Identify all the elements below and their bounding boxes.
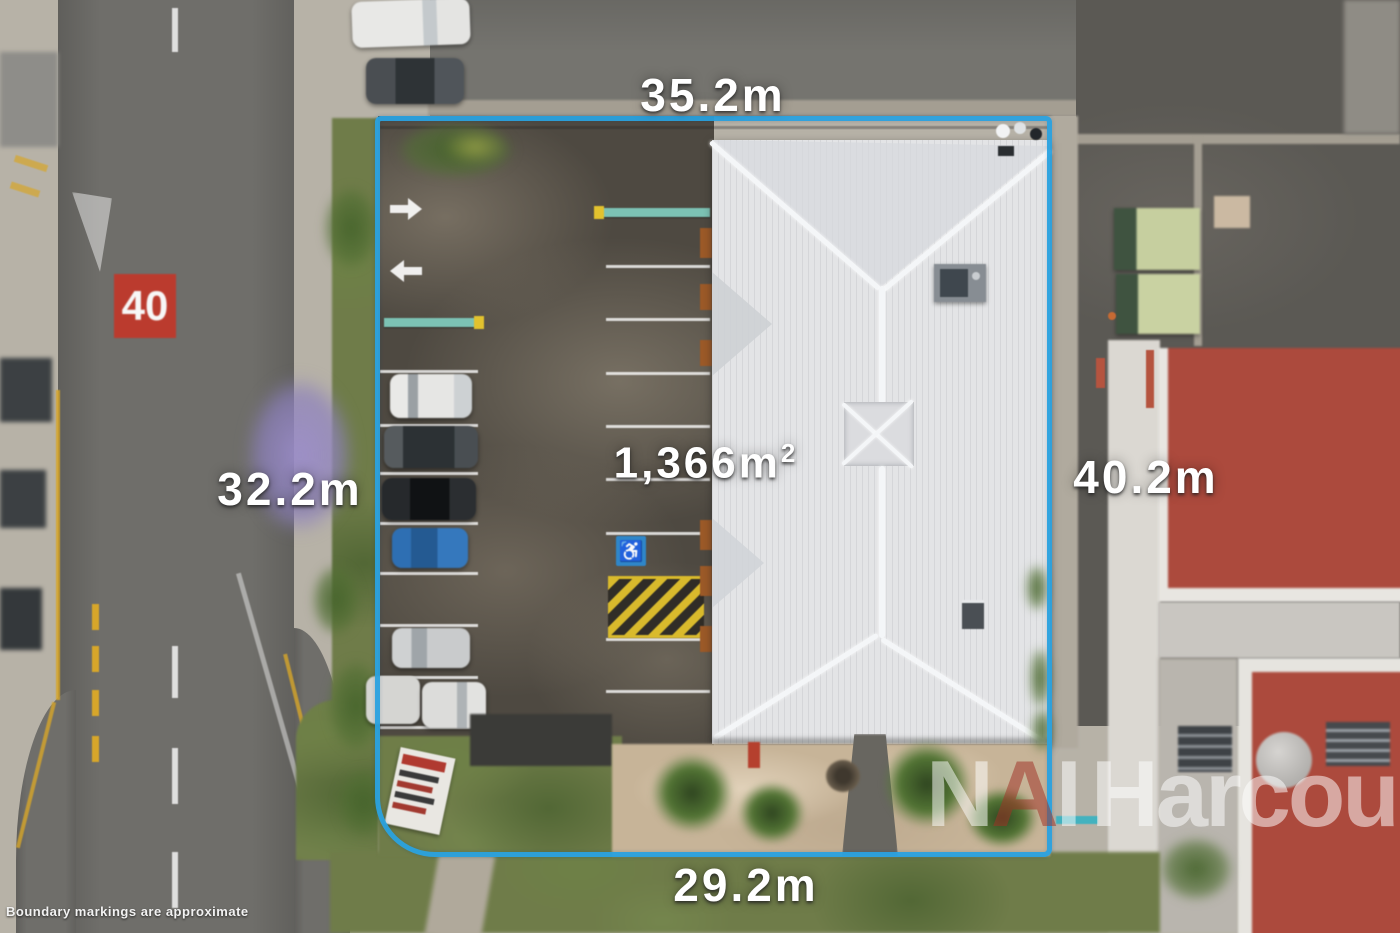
- site-area-exponent: 2: [781, 438, 798, 468]
- neighbour-mid-section: [1158, 602, 1400, 658]
- parked-car-dark: [366, 58, 464, 104]
- yellow-dash: [92, 736, 99, 762]
- green-bin: [1114, 208, 1200, 270]
- measurement-left: 32.2m: [195, 462, 385, 516]
- building-awning: [0, 52, 58, 147]
- pavement-patch: [1214, 196, 1250, 228]
- disclaimer-value: Boundary markings are approximate: [6, 904, 249, 919]
- neighbour-red-vent: [1096, 358, 1105, 388]
- measurement-bottom-value: 29.2m: [673, 859, 818, 911]
- site-area-value: 1,366: [614, 439, 739, 488]
- parked-van: [351, 0, 471, 48]
- yellow-dash-diag: [14, 155, 48, 172]
- walkway-strip: [1052, 116, 1078, 748]
- site-area-unit: m: [739, 439, 781, 488]
- measurement-right-value: 40.2m: [1073, 451, 1218, 503]
- centre-dash: [172, 8, 178, 52]
- disclaimer-text: Boundary markings are approximate: [6, 904, 249, 919]
- yellow-dash-diag: [10, 182, 41, 198]
- tree: [304, 552, 368, 648]
- centre-dash: [172, 748, 178, 804]
- agency-watermark: NAIHarcourts: [926, 740, 1400, 848]
- green-bin: [1116, 274, 1200, 334]
- yellow-dash: [92, 646, 99, 672]
- measurement-top-value: 35.2m: [640, 69, 785, 121]
- aerial-property-photo: 40: [0, 0, 1400, 933]
- speed-limit-value: 40: [122, 282, 169, 330]
- speed-limit-road-marking: 40: [114, 274, 176, 338]
- jacaranda-tree: [226, 346, 374, 564]
- measurement-right: 40.2m: [1048, 450, 1244, 504]
- laneway-light-corner: [1344, 0, 1400, 134]
- neighbour-red-vent: [1146, 350, 1154, 408]
- laneway-concrete-strip-h: [1076, 134, 1400, 144]
- watermark-letter-a: A: [991, 741, 1056, 846]
- site-area-label: 1,366m2: [596, 438, 816, 489]
- orange-marker: [1108, 312, 1116, 320]
- dark-structure: [0, 588, 42, 650]
- measurement-left-value: 32.2m: [217, 463, 362, 515]
- watermark-letter-i: I: [1056, 741, 1079, 846]
- yellow-edge-line: [56, 390, 60, 700]
- dark-structure: [0, 470, 46, 528]
- measurement-bottom: 29.2m: [648, 858, 844, 912]
- yellow-dash: [92, 690, 99, 716]
- measurement-top: 35.2m: [560, 68, 866, 122]
- dark-structure: [0, 358, 52, 422]
- centre-dash: [172, 852, 178, 908]
- watermark-letter-n: N: [926, 741, 991, 846]
- centre-dash: [172, 646, 178, 698]
- yellow-dash: [92, 604, 99, 630]
- watermark-brand: Harcourts: [1091, 741, 1400, 846]
